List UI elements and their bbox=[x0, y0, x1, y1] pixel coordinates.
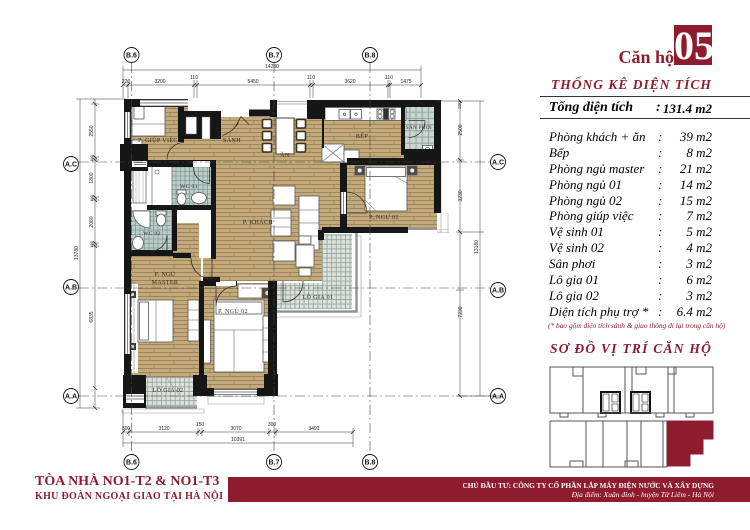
svg-text:SẢNH: SẢNH bbox=[223, 136, 241, 144]
svg-text:6835: 6835 bbox=[89, 311, 95, 322]
svg-text:P. NGỦ 01: P. NGỦ 01 bbox=[369, 213, 399, 221]
svg-text:150: 150 bbox=[196, 422, 205, 428]
svg-text:110: 110 bbox=[385, 75, 393, 81]
svg-text:WC 02: WC 02 bbox=[143, 231, 161, 237]
svg-text:B.7: B.7 bbox=[269, 53, 280, 60]
svg-text:B.8: B.8 bbox=[365, 460, 376, 467]
svg-text:2550: 2550 bbox=[89, 125, 95, 136]
svg-text:LÔ GIA 01: LÔ GIA 01 bbox=[303, 293, 334, 301]
svg-text:WC 01: WC 01 bbox=[180, 184, 198, 190]
svg-text:B.8: B.8 bbox=[365, 53, 376, 60]
svg-text:2080: 2080 bbox=[89, 216, 95, 227]
svg-text:300: 300 bbox=[122, 426, 131, 432]
svg-text:A.B: A.B bbox=[65, 285, 77, 292]
svg-text:110: 110 bbox=[89, 195, 94, 202]
svg-text:220: 220 bbox=[122, 79, 131, 85]
svg-text:3230: 3230 bbox=[458, 190, 464, 201]
svg-text:SÂN PHƠI: SÂN PHƠI bbox=[406, 125, 432, 131]
svg-text:3491: 3491 bbox=[308, 426, 319, 432]
svg-text:14280: 14280 bbox=[265, 64, 279, 70]
svg-text:B.6: B.6 bbox=[126, 53, 137, 60]
svg-text:13780: 13780 bbox=[74, 246, 80, 260]
svg-text:A.C: A.C bbox=[492, 160, 504, 167]
svg-text:BẾP: BẾP bbox=[356, 132, 368, 140]
svg-text:1475: 1475 bbox=[400, 79, 411, 85]
svg-text:MASTER: MASTER bbox=[152, 280, 179, 286]
svg-text:110: 110 bbox=[89, 155, 94, 162]
svg-text:5450: 5450 bbox=[247, 79, 258, 85]
svg-text:3620: 3620 bbox=[344, 79, 355, 85]
svg-text:P. NGỦ: P. NGỦ bbox=[154, 270, 175, 278]
svg-text:110: 110 bbox=[89, 241, 94, 248]
svg-text:13180: 13180 bbox=[474, 240, 480, 254]
svg-text:A.A: A.A bbox=[492, 394, 504, 401]
svg-text:LÔ GIA 02: LÔ GIA 02 bbox=[153, 386, 184, 394]
svg-text:P. NGỦ 02: P. NGỦ 02 bbox=[218, 307, 248, 315]
svg-text:220: 220 bbox=[457, 101, 462, 109]
svg-text:110: 110 bbox=[190, 75, 198, 81]
svg-text:A.C: A.C bbox=[65, 162, 77, 169]
svg-text:A.B: A.B bbox=[492, 288, 504, 295]
svg-text:2500: 2500 bbox=[458, 124, 464, 135]
svg-text:3120: 3120 bbox=[158, 426, 169, 432]
svg-text:B.6: B.6 bbox=[126, 460, 137, 467]
svg-text:7230: 7230 bbox=[458, 306, 464, 317]
svg-text:110: 110 bbox=[307, 75, 315, 81]
svg-text:10391: 10391 bbox=[231, 437, 245, 443]
svg-text:3200: 3200 bbox=[154, 79, 165, 85]
svg-text:1800: 1800 bbox=[89, 172, 95, 183]
svg-text:P. GIÚP VIỆC: P. GIÚP VIỆC bbox=[138, 136, 178, 144]
svg-text:300: 300 bbox=[268, 422, 277, 428]
svg-text:B.7: B.7 bbox=[269, 460, 280, 467]
svg-text:3070: 3070 bbox=[230, 426, 241, 432]
svg-text:ĂN: ĂN bbox=[280, 151, 290, 159]
svg-text:P. KHÁCH: P. KHÁCH bbox=[243, 218, 273, 226]
svg-text:A.A: A.A bbox=[65, 394, 77, 401]
